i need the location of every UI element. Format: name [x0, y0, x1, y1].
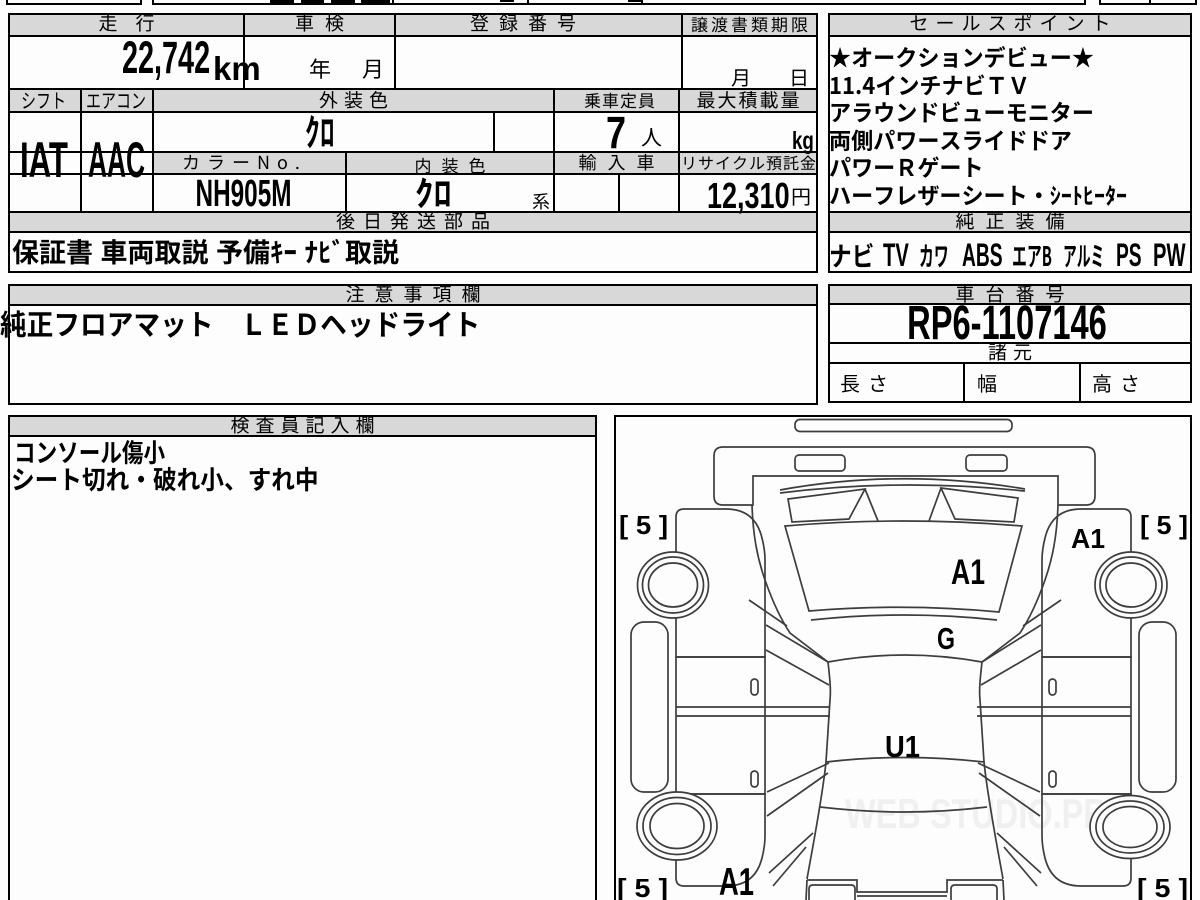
svg-text:A1: A1 — [719, 861, 754, 900]
svg-text:[ 5 ]: [ 5 ] — [1140, 510, 1188, 540]
svg-text:G: G — [937, 621, 955, 656]
svg-text:A1: A1 — [1071, 523, 1105, 554]
svg-text:[ 5 ]: [ 5 ] — [1137, 873, 1188, 900]
svg-text:[ 5 ]: [ 5 ] — [617, 873, 668, 900]
svg-text:[ 5 ]: [ 5 ] — [619, 510, 668, 540]
svg-text:U1: U1 — [885, 729, 920, 764]
svg-text:A1: A1 — [951, 553, 985, 592]
